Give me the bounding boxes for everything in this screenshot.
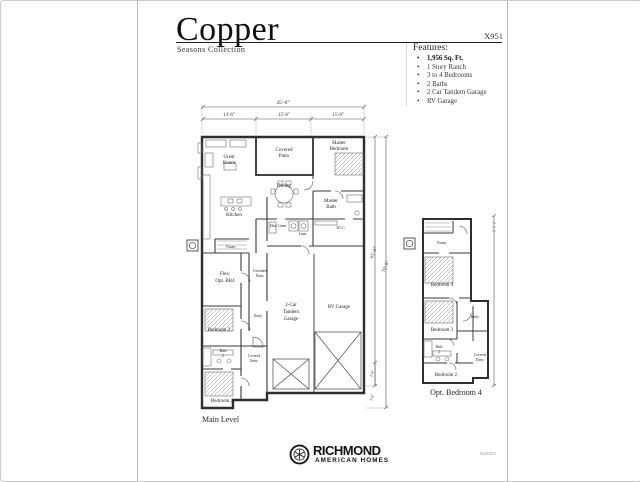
svg-text:Entry: Entry <box>476 358 484 362</box>
label-dining: Dining <box>277 184 291 189</box>
floor-plan-sheet: Copper X951 Seasons Collection Features:… <box>0 0 640 482</box>
svg-text:2: 2 <box>222 354 224 358</box>
opt-bedroom4-plan: Pantry Bedroom 4 Bedroom 3 Entry Bath 2 … <box>404 214 496 397</box>
label-tandem-garage: 2-Car <box>285 303 297 308</box>
label-laundry: Laun. <box>299 232 307 236</box>
label-opt-covered-entry: Covered <box>474 353 486 357</box>
svg-text:Patio: Patio <box>279 154 290 159</box>
label-opt-bath-2: Bath <box>436 345 443 349</box>
label-covered-patio: Covered <box>276 148 293 153</box>
utility-symbol-opt <box>404 238 415 249</box>
label-mud: Mud <box>270 224 277 228</box>
svg-text:Room: Room <box>223 161 235 166</box>
dim-small-1: 2'-0" <box>369 369 375 377</box>
svg-text:Entry: Entry <box>250 359 258 363</box>
label-great-room: Great <box>223 155 235 160</box>
dim-overall-width: 45'-0" <box>276 100 290 106</box>
label-extended-entry: Extended <box>253 269 267 273</box>
main-level-plan: 45'-0" 14'-6" 15'-6" 15'-0" 65'-0" 70'-0… <box>187 100 391 424</box>
dim-depth-inner: 65'-0" <box>370 246 379 259</box>
print-date: 04/2022 <box>456 451 496 456</box>
dim-depth-outer: 70'-0" <box>382 260 391 273</box>
label-opt-bedroom-4: Bedroom 4 <box>431 283 454 288</box>
label-kitchen: Kitchen <box>226 213 242 218</box>
main-level-caption: Main Level <box>202 415 240 424</box>
label-flex: Flex/ <box>220 272 231 277</box>
label-entry: Entry <box>254 314 262 318</box>
label-covered-entry: Covered <box>248 354 260 358</box>
label-bedroom-3: Bedroom 3 <box>208 328 231 333</box>
garage-door-panels <box>273 332 361 389</box>
svg-text:Entry: Entry <box>256 274 264 278</box>
svg-text:Bedroom: Bedroom <box>330 147 349 152</box>
svg-text:Bath: Bath <box>326 205 336 210</box>
brand-subtitle: AMERICAN HOMES <box>315 457 389 464</box>
label-wic: W.i.C. <box>336 226 345 230</box>
dim-small-2: 3'-0" <box>369 393 375 401</box>
svg-text:2: 2 <box>438 350 440 354</box>
opt-bedroom4-caption: Opt. Bedroom 4 <box>430 388 482 397</box>
label-master-bath: Master <box>324 199 338 204</box>
dim-seg-2: 15'-6" <box>278 113 290 118</box>
utility-symbol-main <box>187 240 198 251</box>
richmond-logo-emblem <box>289 444 310 465</box>
label-linen: Linen <box>278 224 287 228</box>
label-pantry: Pantry <box>226 245 236 249</box>
label-opt-entry: Entry <box>471 315 479 319</box>
svg-text:Tandem: Tandem <box>283 310 299 315</box>
label-master-bedroom: Master <box>332 141 346 146</box>
svg-text:Garage: Garage <box>284 317 299 322</box>
label-rv-garage: RV Garage <box>328 305 351 310</box>
top-dimension-lines <box>201 104 366 134</box>
label-bedroom-2: Bedroom 2 <box>211 399 234 404</box>
label-bath-2: Bath <box>220 349 227 353</box>
dim-seg-3: 15'-0" <box>332 113 344 118</box>
plan-drawing: 45'-0" 14'-6" 15'-6" 15'-0" 65'-0" 70'-0… <box>1 1 640 481</box>
svg-text:Opt. BR4: Opt. BR4 <box>215 279 235 284</box>
opt-dimension-line <box>492 214 496 387</box>
label-opt-bedroom-2: Bedroom 2 <box>435 373 458 378</box>
brand-name: RICHMOND <box>313 445 389 457</box>
richmond-logo: RICHMOND AMERICAN HOMES <box>289 442 389 466</box>
dim-seg-1: 14'-6" <box>223 113 235 118</box>
label-opt-pantry: Pantry <box>437 241 447 245</box>
label-opt-bedroom-3: Bedroom 3 <box>431 328 454 333</box>
